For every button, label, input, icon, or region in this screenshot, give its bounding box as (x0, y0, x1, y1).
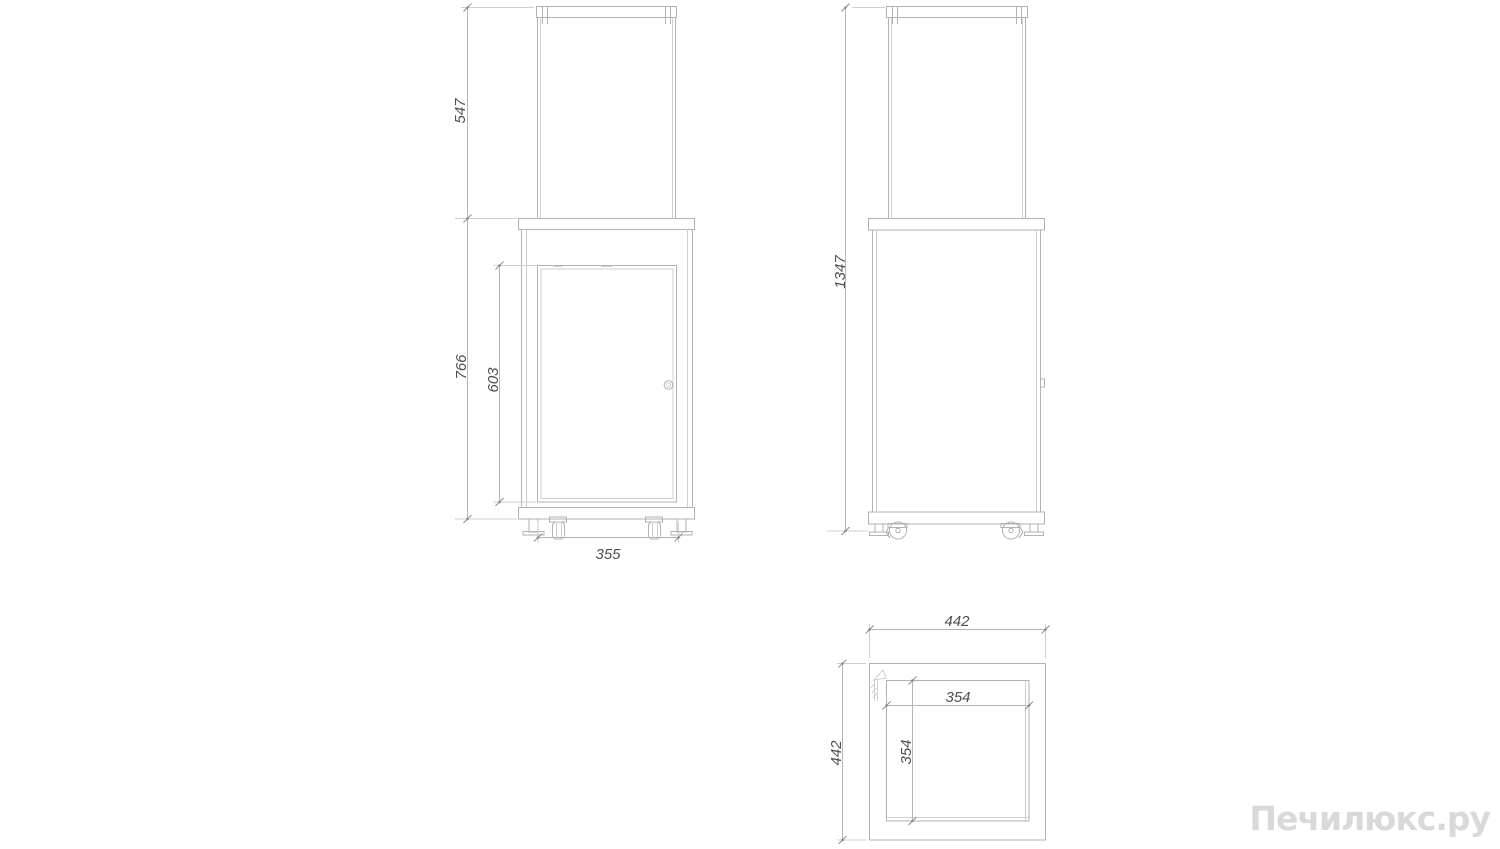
drawing-canvas: 547 766 603 355 (0, 0, 1500, 844)
side-feet-casters (870, 522, 1044, 539)
door-lock (664, 381, 673, 390)
top-view: 442 442 354 354 (828, 613, 1050, 844)
dim-label-total-height: 1347 (832, 255, 849, 289)
side-door-handle (1041, 379, 1045, 387)
side-right-foot (1025, 532, 1044, 536)
dim-outer-width: 442 (866, 613, 1050, 658)
dim-inner-width: 354 (883, 689, 1034, 710)
front-glass-tube (537, 7, 677, 219)
dim-label-outer-depth: 442 (828, 740, 845, 766)
side-left-caster (886, 522, 907, 539)
side-view: 1347 (827, 4, 1045, 540)
front-view: 547 766 603 355 (452, 4, 695, 564)
dim-label-door-height: 603 (485, 367, 502, 393)
dim-door-height: 603 (485, 262, 536, 507)
front-feet-casters (523, 517, 692, 539)
dim-label-inner-depth: 354 (898, 739, 915, 764)
front-top-plate (519, 219, 695, 230)
side-left-foot (870, 532, 889, 536)
front-top-cap (537, 7, 677, 18)
side-body (869, 219, 1045, 525)
dim-label-base-width: 355 (595, 546, 621, 563)
top-igniter-detail (871, 670, 886, 701)
front-door (538, 266, 677, 503)
dim-inner-depth: 354 (898, 677, 917, 826)
front-right-caster (646, 517, 663, 539)
dim-label-glass-height: 547 (452, 98, 469, 124)
dim-label-body-height: 766 (453, 354, 470, 380)
dim-outer-depth: 442 (828, 660, 866, 845)
dim-label-outer-width: 442 (944, 613, 970, 630)
front-left-foot (529, 519, 538, 532)
side-top-plate (869, 219, 1045, 231)
front-bottom-plate (519, 508, 695, 520)
site-watermark: Печилюкс.ру (1249, 799, 1490, 838)
dim-label-inner-width: 354 (945, 689, 970, 706)
front-left-caster (550, 517, 567, 539)
side-right-caster (1001, 522, 1023, 539)
front-body (519, 219, 695, 520)
side-glass-tube (887, 7, 1028, 219)
heater-dimension-drawing: 547 766 603 355 (0, 0, 1500, 844)
side-top-cap (887, 7, 1028, 18)
